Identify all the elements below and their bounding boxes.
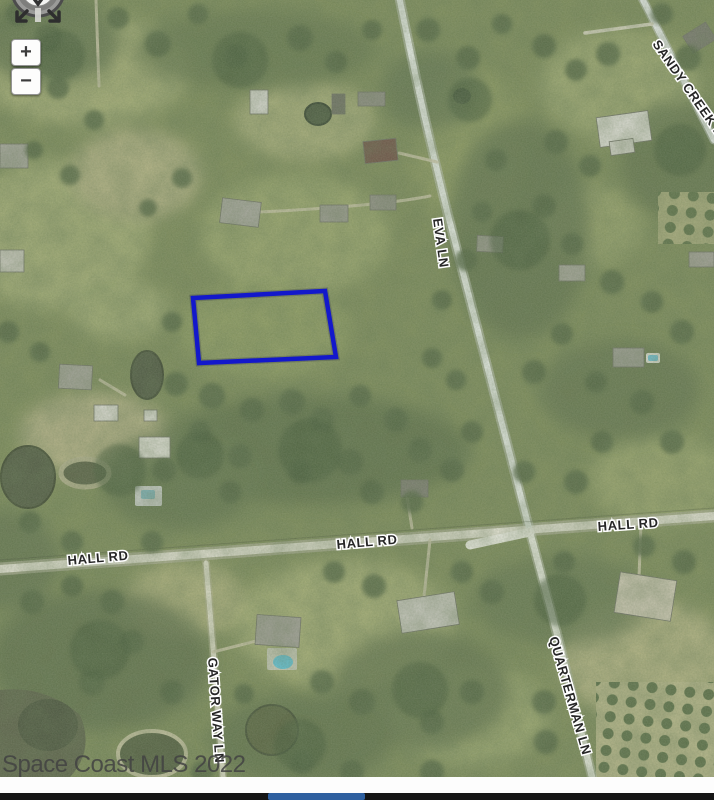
mls-watermark: Space Coast MLS 2022 xyxy=(2,751,246,777)
aerial-map-image: SANDY CREEK LNEVA LNHALL RDHALL RDHALL R… xyxy=(0,0,714,777)
pan-southeast-arrow-icon[interactable] xyxy=(49,11,59,21)
map-canvas[interactable]: SANDY CREEK LNEVA LNHALL RDHALL RDHALL R… xyxy=(0,0,714,777)
zoom-in-button[interactable]: + xyxy=(11,39,41,66)
scrub-progress-fill xyxy=(268,793,365,800)
bottom-whitespace xyxy=(0,777,714,793)
compass-icon[interactable] xyxy=(6,0,70,32)
zoom-out-button[interactable]: − xyxy=(11,68,41,95)
pan-southwest-arrow-icon[interactable] xyxy=(17,11,27,21)
texture-grain-light xyxy=(0,0,714,777)
media-scrub-bar[interactable] xyxy=(0,793,714,800)
screenshot-root: SANDY CREEK LNEVA LNHALL RDHALL RDHALL R… xyxy=(0,0,714,800)
